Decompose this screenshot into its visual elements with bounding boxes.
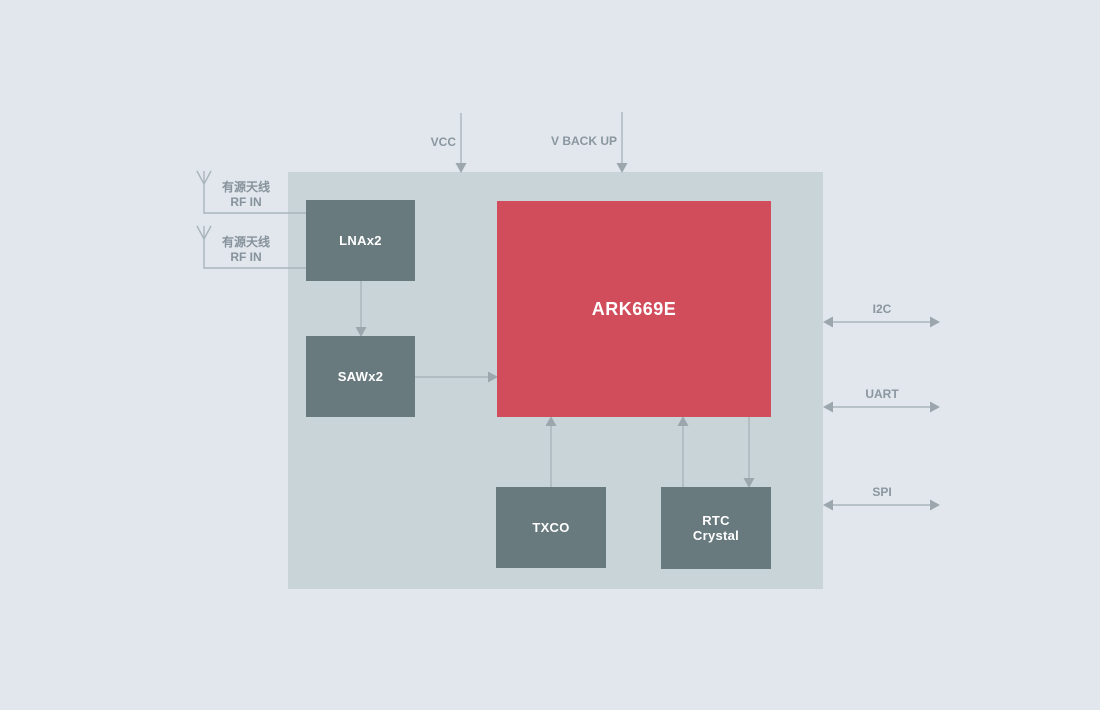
txco-block: TXCO (496, 487, 606, 568)
rtc-crystal-block: RTC Crystal (661, 487, 771, 569)
antenna2-label: 有源天线 RF IN (215, 235, 277, 265)
spi-label: SPI (824, 485, 940, 499)
rtc-label-line1: RTC (702, 513, 730, 528)
rtc-label-line2: Crystal (693, 528, 739, 543)
uart-right-arrowhead (930, 402, 940, 413)
saw-block: SAWx2 (306, 336, 415, 417)
antenna1-name: 有源天线 (215, 180, 277, 195)
antenna1-port: RF IN (215, 195, 277, 210)
lna-label: LNAx2 (339, 233, 382, 248)
i2c-right-arrowhead (930, 317, 940, 328)
uart-left-arrowhead (823, 402, 833, 413)
spi-left-arrowhead (823, 500, 833, 511)
antenna2-name: 有源天线 (215, 235, 277, 250)
block-diagram: LNAx2 SAWx2 ARK669E TXCO RTC Crystal 有源天… (0, 0, 1100, 710)
spi-right-arrowhead (930, 500, 940, 511)
antenna2-port: RF IN (215, 250, 277, 265)
antenna-icon (197, 226, 211, 239)
main-chip-label: ARK669E (592, 299, 677, 320)
txco-label: TXCO (532, 520, 569, 535)
i2c-label: I2C (824, 302, 940, 316)
antenna-icon (197, 171, 211, 184)
uart-label: UART (824, 387, 940, 401)
vcc-label: VCC (398, 135, 456, 149)
antenna1-label: 有源天线 RF IN (215, 180, 277, 210)
lna-block: LNAx2 (306, 200, 415, 281)
saw-label: SAWx2 (338, 369, 384, 384)
i2c-left-arrowhead (823, 317, 833, 328)
vbackup-label: V BACK UP (497, 134, 617, 148)
main-chip-block: ARK669E (497, 201, 771, 417)
